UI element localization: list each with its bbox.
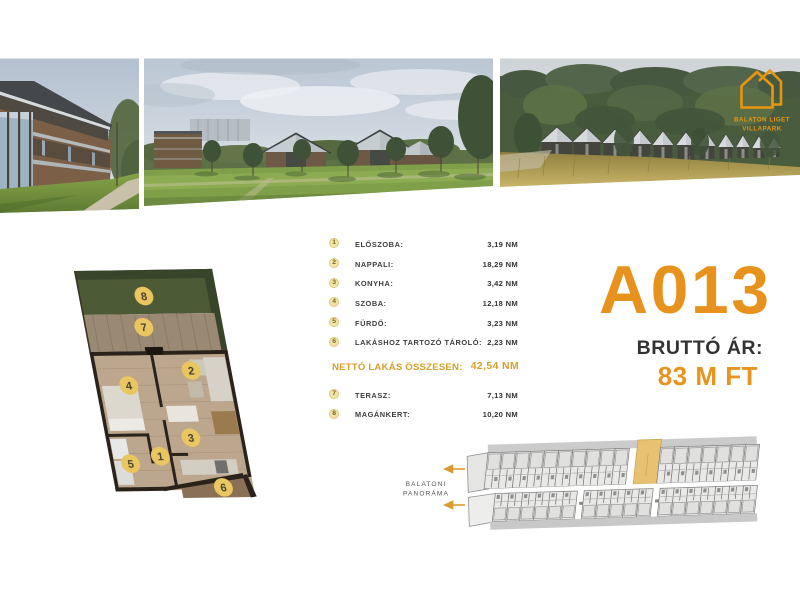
svg-text:PANORÁMA: PANORÁMA	[403, 489, 449, 498]
svg-text:BALATONI: BALATONI	[406, 481, 447, 488]
